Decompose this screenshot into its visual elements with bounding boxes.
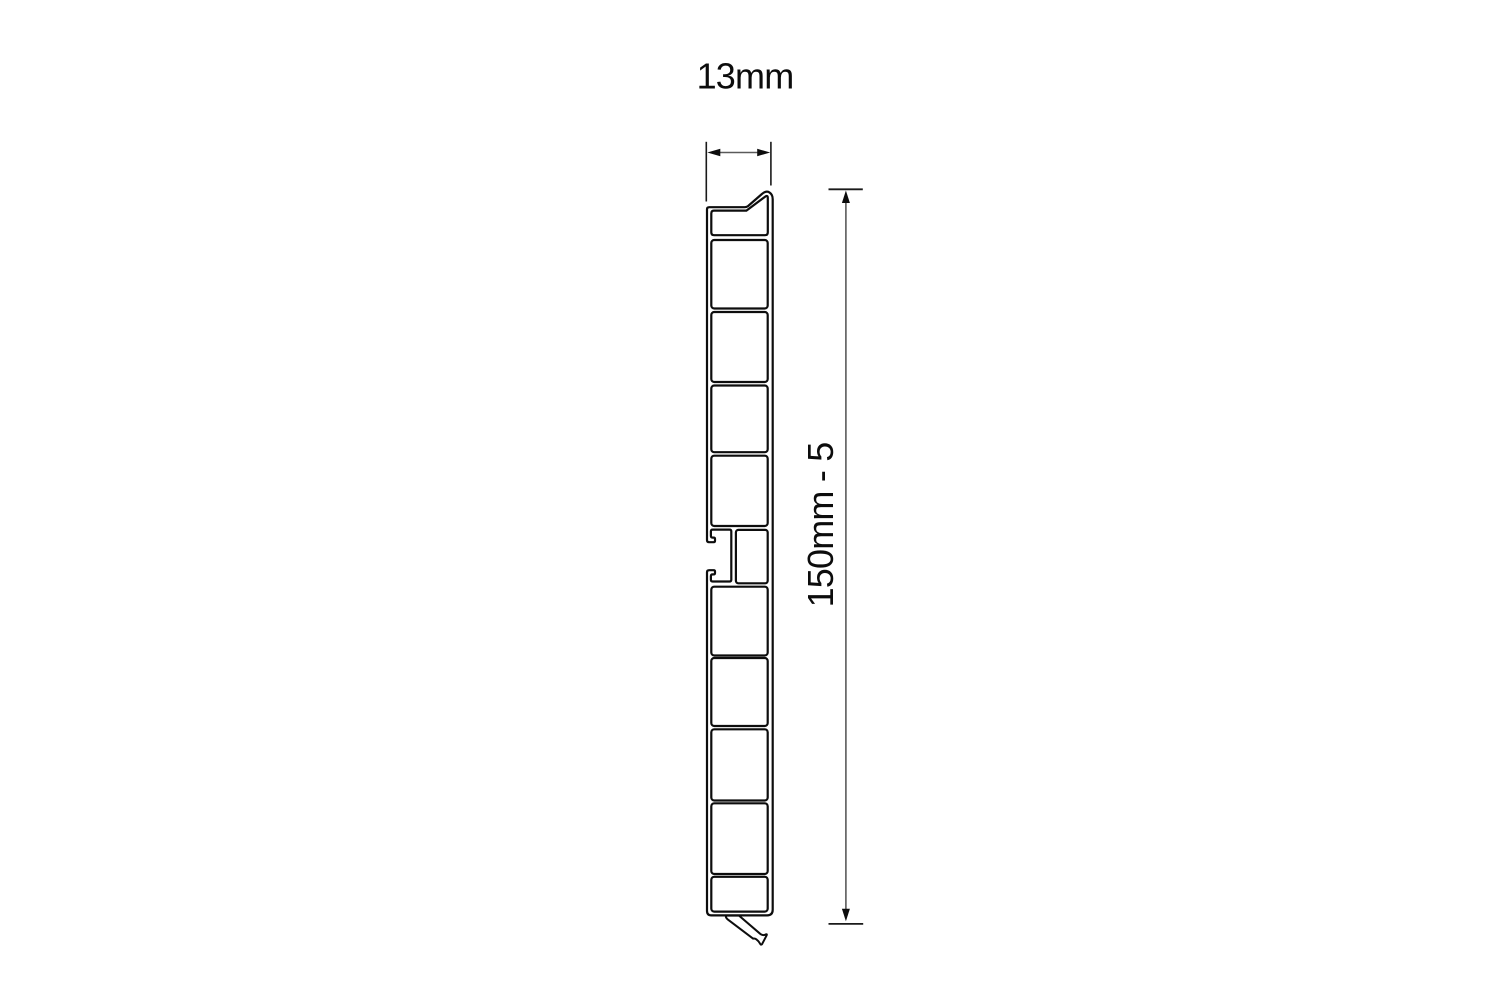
- svg-text:150mm - 5: 150mm - 5: [800, 443, 841, 608]
- svg-text:13mm: 13mm: [697, 56, 794, 97]
